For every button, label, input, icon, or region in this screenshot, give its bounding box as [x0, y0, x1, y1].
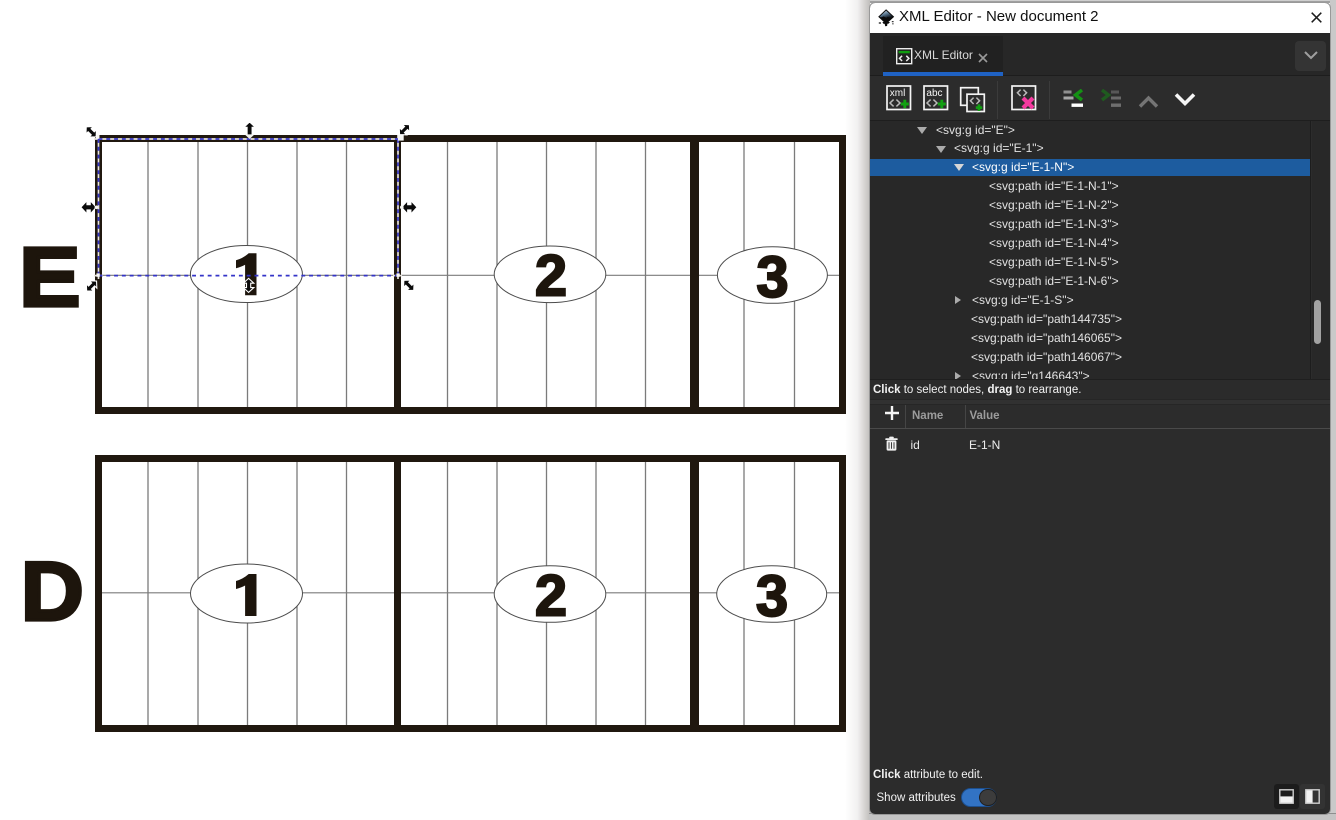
svg-text:2: 2 [535, 564, 567, 629]
svg-text:E: E [19, 230, 81, 324]
svg-text:2: 2 [535, 244, 567, 309]
svg-text:abc: abc [926, 88, 942, 99]
svg-text:xml: xml [890, 88, 906, 99]
svg-text:3: 3 [756, 564, 788, 629]
svg-text:3: 3 [756, 245, 788, 310]
svg-text:D: D [21, 545, 84, 639]
